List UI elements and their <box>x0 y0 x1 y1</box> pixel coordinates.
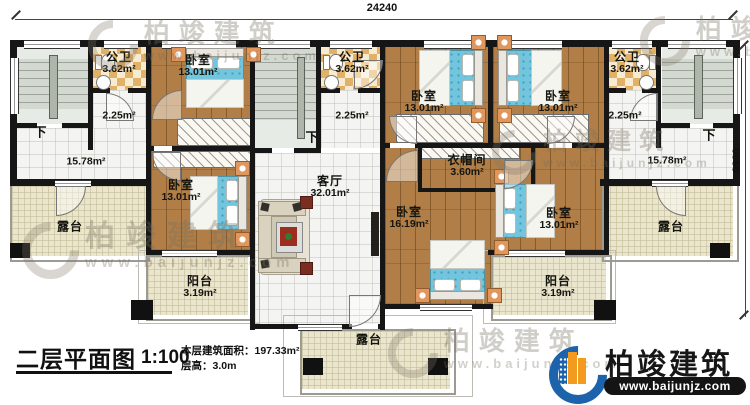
pillow <box>462 54 474 76</box>
column-post <box>131 300 153 320</box>
room-area: 3.60m² <box>450 167 483 178</box>
room-area: 13.01m² <box>538 103 577 114</box>
logo-building-orange <box>568 352 577 384</box>
plant <box>285 233 292 240</box>
window <box>420 304 472 311</box>
floor-height-text: 层高：3.0m <box>181 358 236 373</box>
wall <box>488 40 493 148</box>
wall <box>250 40 255 330</box>
dimension-tick <box>739 40 749 50</box>
room-name: 公卫 <box>106 51 132 64</box>
window <box>24 40 80 49</box>
room-label-hall1: 2.25m² <box>102 110 135 121</box>
dimension-line-right <box>745 45 746 317</box>
nightstand <box>497 35 512 50</box>
basin-icon <box>324 75 339 90</box>
wall <box>660 123 690 128</box>
room-label-terrace-bottom: 露台 <box>356 334 382 347</box>
room-area: 13.01m² <box>539 220 578 231</box>
pillow <box>507 54 519 76</box>
window <box>330 40 372 49</box>
duvet <box>430 240 485 269</box>
room-label-hall2: 2.25m² <box>335 110 368 121</box>
nightstand <box>487 288 502 303</box>
room-area: 2.25m² <box>608 110 641 121</box>
room-name: 阳台 <box>187 275 213 288</box>
room-name: 客厅 <box>317 175 343 188</box>
room-label-bed6: 卧室 13.01m² <box>539 207 578 231</box>
window <box>506 40 562 49</box>
wall <box>88 46 93 150</box>
headboard <box>495 184 504 238</box>
toilet-tank <box>649 55 656 70</box>
dimension-top-value: 24240 <box>367 2 398 14</box>
pillow <box>504 213 516 234</box>
brand-url: www.baijunjz.com <box>604 377 746 395</box>
nightstand <box>471 35 486 50</box>
window <box>10 58 19 114</box>
headboard <box>238 176 247 230</box>
pillow <box>507 80 519 102</box>
wall <box>358 88 380 93</box>
wall <box>62 123 93 128</box>
dimension-line-top <box>15 19 733 20</box>
basin-icon <box>639 75 654 90</box>
column-post <box>303 358 323 375</box>
window <box>258 40 310 49</box>
nightstand <box>246 47 261 62</box>
room-area: 13.01m² <box>404 103 443 114</box>
title-underline <box>16 371 172 374</box>
room-name: 公卫 <box>339 51 365 64</box>
room-area: 3.62m² <box>610 64 643 75</box>
room-label-balcony-left: 阳台 3.19m² <box>183 275 216 299</box>
brand-logo-icon <box>547 340 601 396</box>
dimension-tick <box>728 10 738 20</box>
room-name: 卧室 <box>168 179 194 192</box>
room-area: 3.62m² <box>335 64 368 75</box>
room-area: 13.01m² <box>178 67 217 78</box>
wall <box>418 188 507 192</box>
wall <box>380 143 390 148</box>
column-post <box>10 243 30 258</box>
room-name: 衣帽间 <box>447 154 486 167</box>
room-area: 2.25m² <box>335 110 368 121</box>
room-label-bath2: 公卫 3.62m² <box>335 51 368 75</box>
wall <box>415 143 549 148</box>
wall <box>380 40 385 330</box>
room-area: 13.01m² <box>161 192 200 203</box>
room-label-family2: 15.78m² <box>647 155 686 166</box>
wall <box>146 146 154 151</box>
headboard <box>474 50 483 106</box>
pillow <box>462 80 474 102</box>
closet-hatch <box>177 118 251 146</box>
wall <box>172 146 255 151</box>
wall <box>294 148 321 153</box>
wall <box>250 148 272 153</box>
room-label-bed4: 卧室 13.01m² <box>161 179 200 203</box>
room-name: 卧室 <box>411 90 437 103</box>
room-area: 3.62m² <box>102 64 135 75</box>
pillow <box>460 279 481 291</box>
stair-down-label-left: 下 <box>33 122 46 141</box>
room-label-hall3: 2.25m² <box>608 110 641 121</box>
room-area: 32.01m² <box>310 188 349 199</box>
room-name: 卧室 <box>545 90 571 103</box>
stair-rail <box>694 55 703 119</box>
window <box>505 250 565 257</box>
room-label-bed1: 卧室 13.01m² <box>178 54 217 78</box>
nightstand <box>415 288 430 303</box>
column-post <box>710 243 730 258</box>
nightstand <box>235 161 250 176</box>
floor-plan-canvas: 24240 9900 公卫 3.62m² 卧室 13.01m² 2.25m² 公… <box>0 0 750 405</box>
pillow <box>217 57 240 69</box>
room-name: 露台 <box>658 221 684 234</box>
brand-url-text: www.baijunjz.com <box>619 379 731 393</box>
dimension-tick <box>739 310 749 320</box>
room-name: 卧室 <box>185 54 211 67</box>
window <box>612 40 652 49</box>
stair-down-label-middle: 下 <box>305 127 318 146</box>
wall <box>378 324 385 329</box>
pillow <box>434 279 455 291</box>
room-label-bed5: 卧室 16.19m² <box>389 206 428 230</box>
nightstand <box>497 108 512 123</box>
window <box>162 250 217 257</box>
pillow <box>504 188 516 209</box>
stair-rail <box>49 55 58 119</box>
wall <box>604 88 626 93</box>
headboard <box>430 291 485 300</box>
logo-building-orange <box>578 358 586 384</box>
page-title: 二层平面图 <box>16 340 136 374</box>
pillow <box>226 205 238 226</box>
room-label-bed3: 卧室 13.01m² <box>538 90 577 114</box>
nightstand <box>494 240 509 255</box>
headboard <box>498 50 507 106</box>
wall <box>128 88 146 93</box>
column-post <box>428 358 448 375</box>
room-label-terrace-right: 露台 <box>658 221 684 234</box>
wall <box>713 123 740 128</box>
dimension-right-value: 9900 <box>731 148 743 172</box>
room-name: 露台 <box>57 221 83 234</box>
stair-rail <box>297 57 305 139</box>
room-area: 16.19m² <box>389 219 428 230</box>
room-name: 公卫 <box>614 51 640 64</box>
cushion <box>260 202 269 211</box>
room-area: 15.78m² <box>647 155 686 166</box>
room-label-bath3: 公卫 3.62m² <box>610 51 643 75</box>
room-area: 3.19m² <box>541 288 574 299</box>
logo-building-blue <box>559 357 567 384</box>
duvet <box>186 79 244 108</box>
bed <box>430 240 485 300</box>
room-label-balcony-right: 阳台 3.19m² <box>541 275 574 299</box>
room-label-bath1: 公卫 3.62m² <box>102 51 135 75</box>
floor-area-text: 本层建筑面积：197.33m² <box>181 343 299 358</box>
room-area: 15.78m² <box>66 156 105 167</box>
window <box>104 40 138 49</box>
window <box>733 58 742 114</box>
room-name: 卧室 <box>546 207 572 220</box>
room-label-bed2: 卧室 13.01m² <box>404 90 443 114</box>
wall <box>572 143 609 148</box>
room-area: 2.25m² <box>102 110 135 121</box>
room-area: 3.19m² <box>183 288 216 299</box>
room-name: 卧室 <box>396 206 422 219</box>
pillow <box>226 180 238 201</box>
room-label-family1: 15.78m² <box>66 156 105 167</box>
stair-down-label-right: 下 <box>702 125 715 144</box>
room-name: 露台 <box>356 334 382 347</box>
column-post <box>594 300 616 320</box>
nightstand <box>235 232 250 247</box>
side-table <box>300 262 313 275</box>
nightstand <box>471 108 486 123</box>
room-label-cloak: 衣帽间 3.60m² <box>447 154 486 178</box>
room-label-terrace-left: 露台 <box>57 221 83 234</box>
basin-icon <box>96 75 111 90</box>
window <box>298 324 342 331</box>
room-label-living: 客厅 32.01m² <box>310 175 349 199</box>
closet-hatch <box>499 114 589 143</box>
room-name: 阳台 <box>545 275 571 288</box>
window <box>668 40 726 49</box>
cushion <box>260 259 269 268</box>
tv <box>371 212 379 256</box>
wall <box>418 143 422 192</box>
